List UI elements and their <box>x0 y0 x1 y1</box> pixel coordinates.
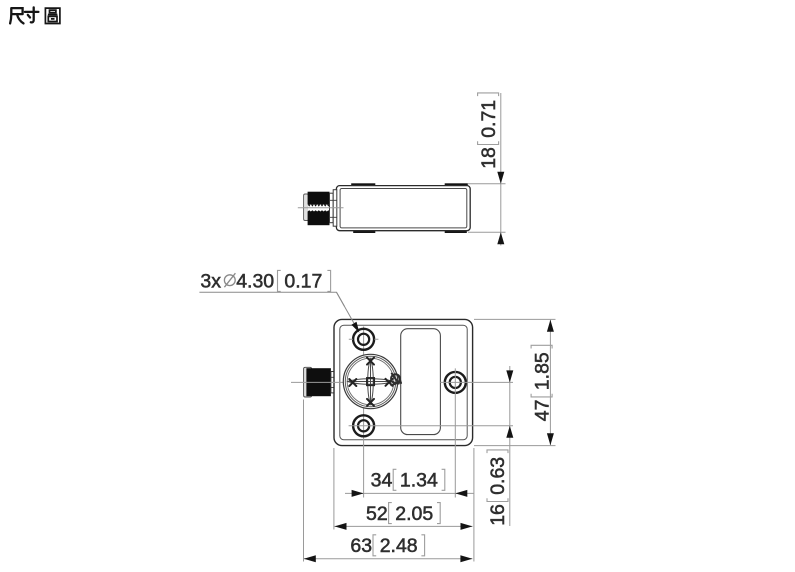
svg-text:34: 34 <box>371 470 393 492</box>
svg-text:4.30: 4.30 <box>236 271 274 293</box>
svg-text:0.17: 0.17 <box>284 271 322 293</box>
svg-text:0.63: 0.63 <box>487 457 509 495</box>
svg-text:1.34: 1.34 <box>400 470 438 492</box>
svg-text:2.05: 2.05 <box>395 503 433 525</box>
svg-text:16: 16 <box>487 504 509 526</box>
svg-text:52: 52 <box>366 503 388 525</box>
svg-text:47: 47 <box>531 399 553 421</box>
svg-text:0.71: 0.71 <box>478 100 500 138</box>
svg-text:2.48: 2.48 <box>380 535 418 557</box>
svg-text:3x: 3x <box>200 271 221 293</box>
svg-text:1.85: 1.85 <box>531 352 553 390</box>
svg-text:63: 63 <box>350 535 372 557</box>
svg-text:18: 18 <box>478 147 500 169</box>
